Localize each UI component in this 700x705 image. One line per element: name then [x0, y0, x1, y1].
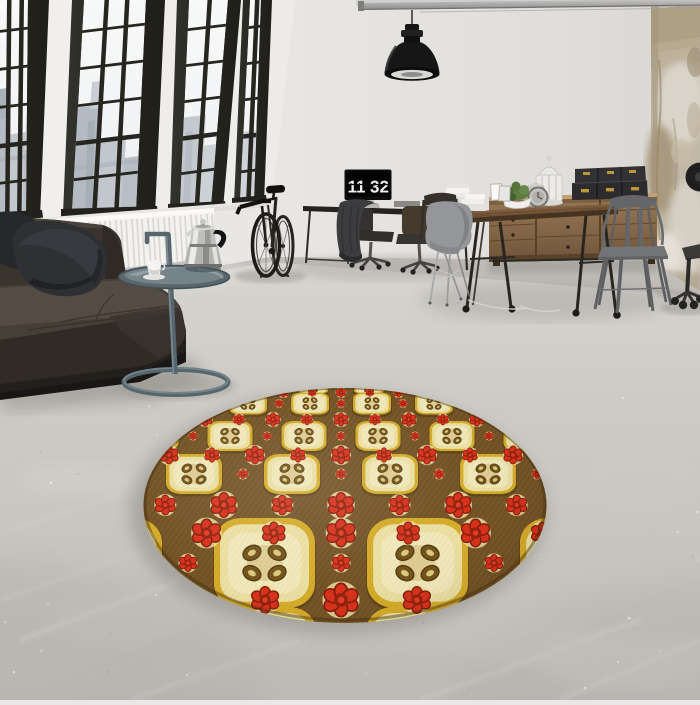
svg-text:32: 32	[370, 177, 389, 196]
svg-text:11: 11	[348, 177, 366, 196]
